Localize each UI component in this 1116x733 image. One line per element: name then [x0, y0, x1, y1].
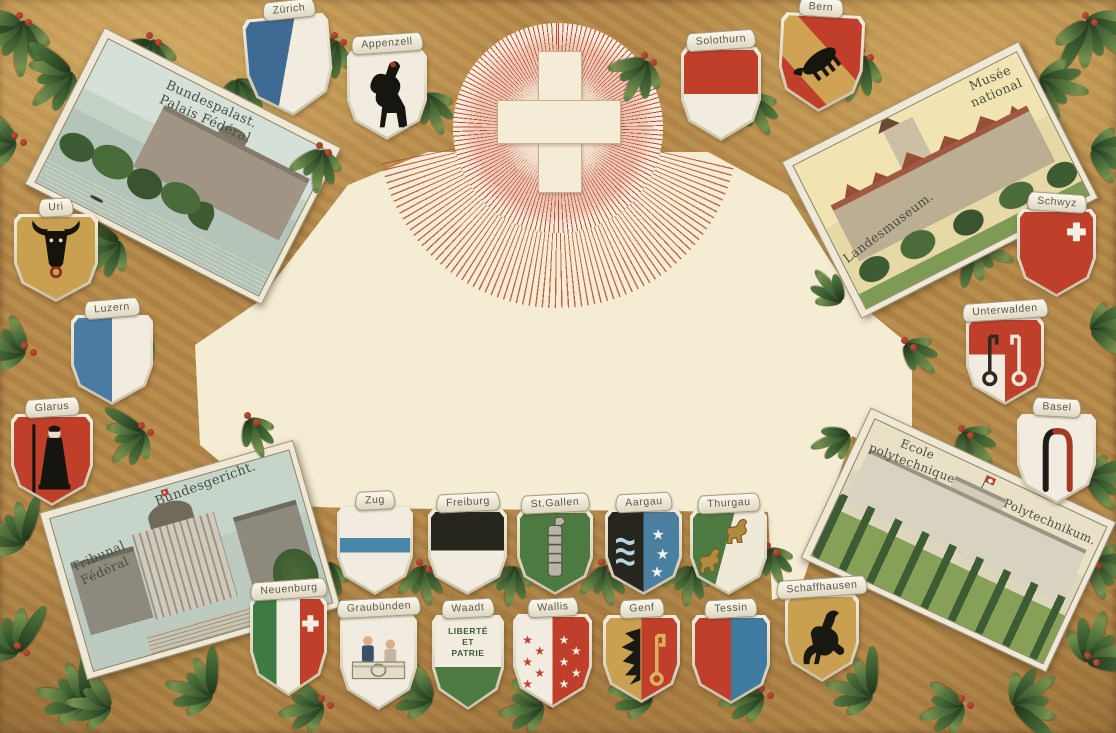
tessin-banner-label: Tessin: [704, 598, 758, 620]
polytechnikum-swiss-flag-icon: [985, 476, 996, 486]
zug-banner-label: Zug: [355, 490, 396, 511]
swiss-cross-icon: [497, 51, 621, 193]
bern-shield: [776, 12, 865, 114]
berry: [23, 649, 30, 656]
basel-shield: [1017, 414, 1096, 504]
svg-text:★: ★: [522, 633, 533, 647]
genf-shield: [603, 615, 680, 703]
unterwalden-shield: [966, 317, 1044, 405]
berry: [316, 142, 323, 149]
bern-banner-label: Bern: [798, 0, 844, 19]
berry: [16, 12, 23, 19]
svg-text:★: ★: [650, 563, 663, 581]
zug-shield: [337, 507, 413, 595]
berry: [598, 559, 605, 566]
waadt-motto: LIBERTÉETPATRIE: [435, 626, 501, 659]
thurgau-banner-label: Thurgau: [696, 492, 760, 514]
svg-text:★: ★: [571, 666, 582, 680]
berry: [325, 149, 332, 156]
berry: [21, 342, 28, 349]
stgallen-shield: [517, 510, 593, 595]
aargau-banner-label: Aargau: [614, 492, 672, 514]
graubuenden-shield: [340, 614, 417, 710]
schaffhausen-shield: [785, 594, 859, 682]
solothurn-shield: [681, 47, 761, 141]
svg-text:★: ★: [652, 525, 665, 543]
berry: [641, 52, 648, 59]
uri-shield: [14, 214, 98, 302]
berry: [1093, 659, 1100, 666]
berry: [340, 39, 347, 46]
berry: [867, 54, 874, 61]
freiburg-shield: [428, 509, 507, 595]
bern-arms: [780, 15, 863, 111]
tessin-shield: [692, 615, 770, 704]
svg-text:★: ★: [522, 655, 533, 669]
berry: [1082, 12, 1089, 19]
cross-horizontal-bar: [497, 100, 621, 144]
genf-banner-label: Genf: [618, 598, 664, 619]
berry: [773, 549, 780, 556]
wallis-shield: ★★★★★★★★★★: [513, 614, 592, 708]
berry: [967, 702, 974, 709]
glarus-banner-label: Glarus: [24, 396, 80, 419]
uri-banner-label: Uri: [38, 197, 74, 218]
berry: [20, 139, 27, 146]
berry: [318, 695, 325, 702]
berry: [327, 702, 334, 709]
neuenburg-shield: [250, 596, 327, 696]
appenzell-shield: [347, 50, 427, 140]
schwyz-shield: [1017, 209, 1096, 297]
bern-charge-icon: [780, 15, 863, 111]
stgallen-banner-label: St.Gallen: [520, 492, 589, 515]
wallis-banner-label: Wallis: [526, 597, 578, 619]
svg-text:★: ★: [559, 677, 570, 691]
postcard: Bundespalast. Palais Fédéral Landesmuseu…: [0, 0, 1116, 733]
waadt-motto-line: ET: [435, 637, 501, 648]
aargau-shield: ★★★: [605, 509, 682, 595]
zurich-shield: [242, 12, 336, 119]
berry: [147, 429, 154, 436]
berry: [958, 425, 965, 432]
berry: [244, 412, 251, 419]
berry: [1091, 19, 1098, 26]
berry: [958, 695, 965, 702]
glarus-shield: [11, 414, 93, 506]
svg-text:★: ★: [534, 644, 545, 658]
freiburg-banner-label: Freiburg: [435, 491, 500, 513]
berry: [146, 32, 153, 39]
svg-text:★: ★: [656, 545, 669, 563]
berry: [650, 59, 657, 66]
berry: [331, 32, 338, 39]
waadt-motto-line: LIBERTÉ: [435, 626, 501, 637]
thurgau-shield: [690, 510, 767, 595]
berry: [253, 419, 260, 426]
waadt-banner-label: Waadt: [441, 598, 495, 620]
berry: [14, 642, 21, 649]
svg-text:★: ★: [559, 655, 570, 669]
berry: [901, 337, 908, 344]
berry: [30, 349, 37, 356]
berry: [138, 422, 145, 429]
svg-text:★: ★: [559, 633, 570, 647]
berry: [416, 559, 423, 566]
svg-text:★: ★: [571, 644, 582, 658]
waadt-shield: LIBERTÉETPATRIE: [432, 615, 504, 710]
svg-text:★: ★: [534, 666, 545, 680]
berry: [25, 19, 32, 26]
basel-banner-label: Basel: [1031, 397, 1081, 419]
zurich-arms: [245, 16, 333, 117]
berry: [11, 132, 18, 139]
waadt-motto-line: PATRIE: [435, 648, 501, 659]
landesmuseum-caption-fr: Musée national: [962, 60, 1025, 110]
berry: [1084, 652, 1091, 659]
berry: [967, 432, 974, 439]
berry: [910, 344, 917, 351]
luzern-shield: [71, 315, 153, 405]
berry: [155, 39, 162, 46]
